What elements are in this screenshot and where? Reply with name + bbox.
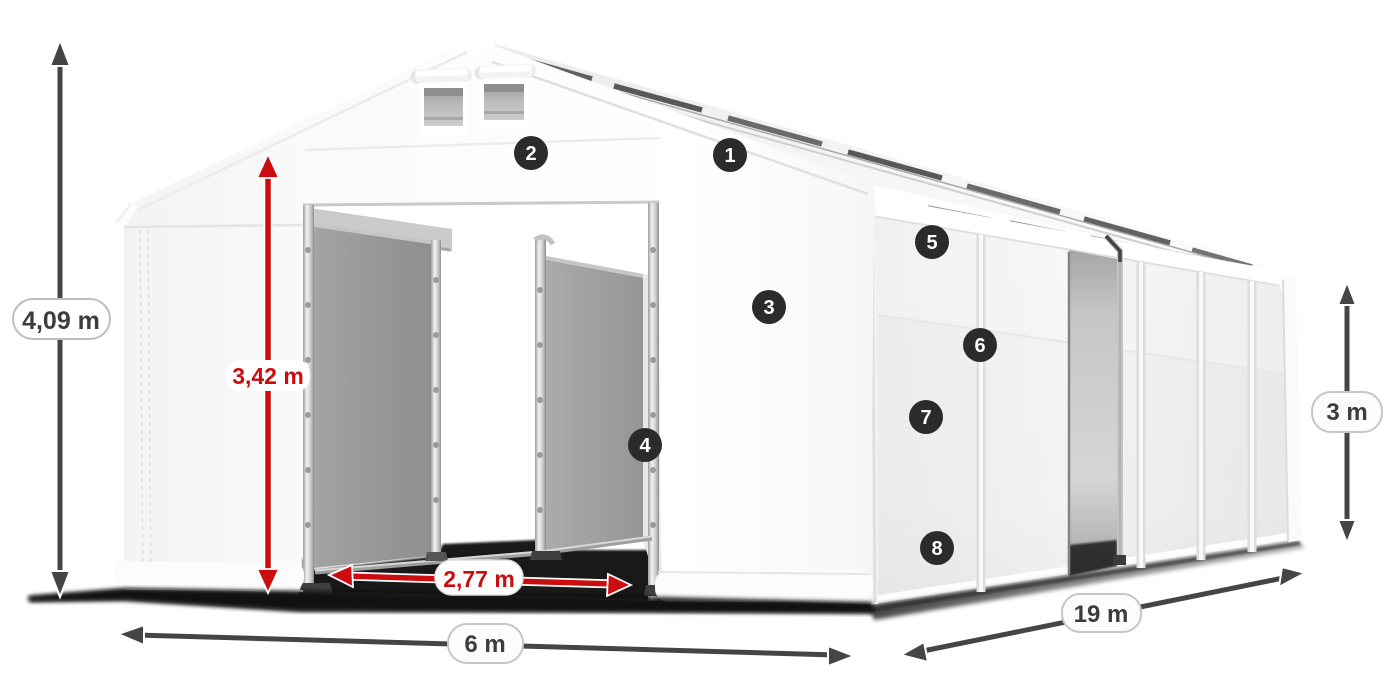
svg-text:6 m: 6 m (464, 631, 505, 658)
svg-text:2,77 m: 2,77 m (443, 566, 515, 592)
svg-text:3 m: 3 m (1326, 399, 1367, 426)
svg-text:4: 4 (639, 435, 651, 457)
svg-text:1: 1 (724, 145, 735, 167)
svg-text:5: 5 (926, 232, 937, 254)
svg-text:3: 3 (763, 297, 774, 319)
svg-text:6: 6 (974, 335, 985, 357)
svg-text:4,09 m: 4,09 m (22, 307, 100, 335)
svg-text:2: 2 (525, 143, 536, 165)
svg-text:7: 7 (920, 407, 931, 429)
svg-text:8: 8 (931, 538, 942, 560)
svg-text:19 m: 19 m (1074, 601, 1129, 628)
svg-text:3,42 m: 3,42 m (232, 363, 304, 389)
